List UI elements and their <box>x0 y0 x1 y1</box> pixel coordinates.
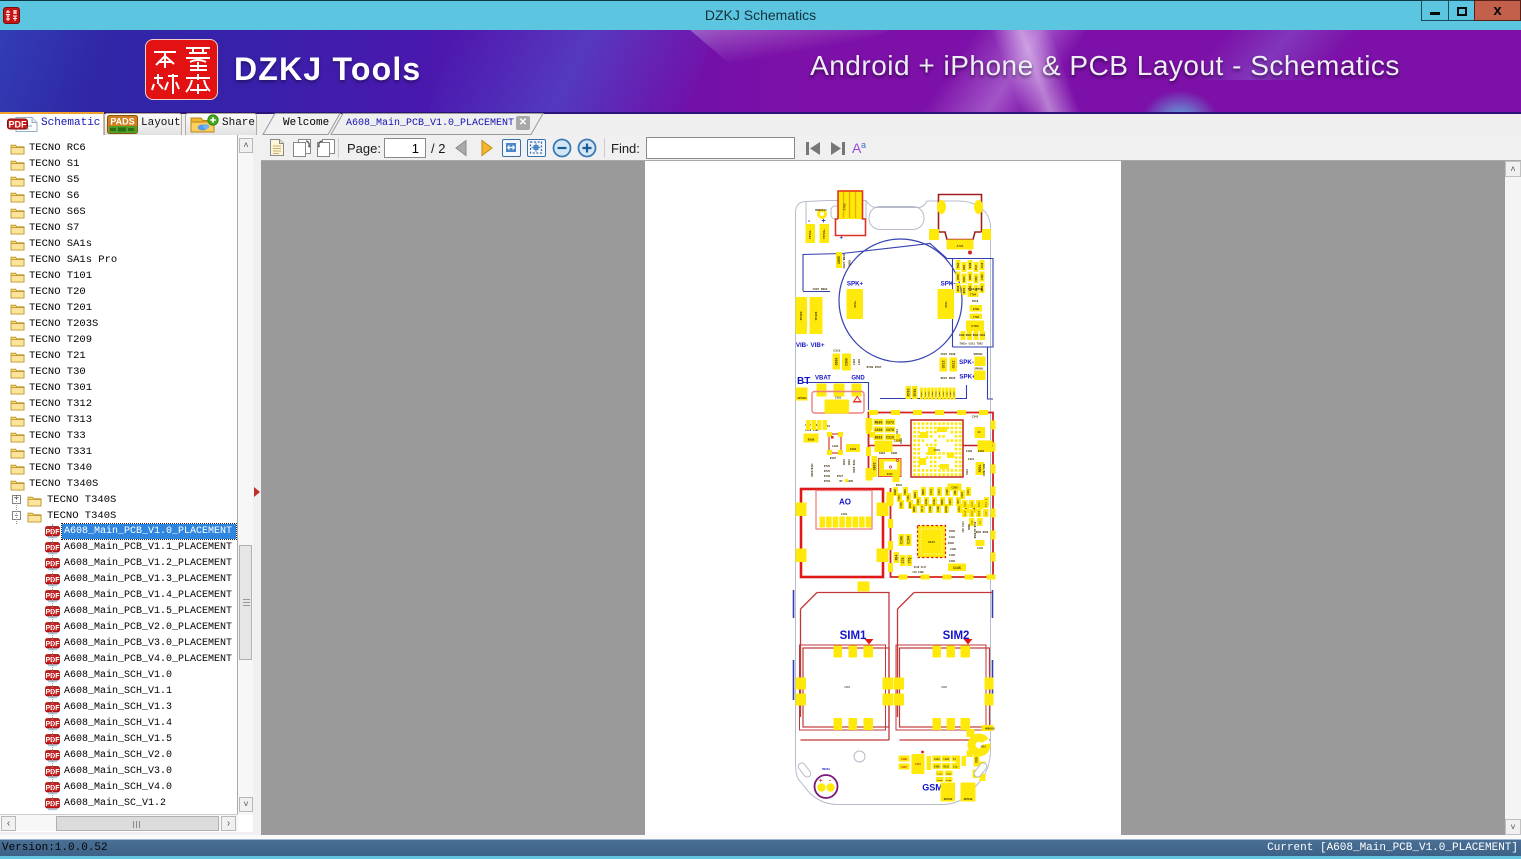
svg-text:MARK102: MARK102 <box>985 728 995 731</box>
svg-text:C313: C313 <box>971 501 974 507</box>
svg-text:+: + <box>822 218 826 225</box>
svg-text:C145: C145 <box>953 566 961 570</box>
svg-text:L104x: L104x <box>925 498 928 506</box>
svg-text:C105: C105 <box>900 536 904 544</box>
svg-text:C328: C328 <box>931 391 934 397</box>
svg-text:C7W C1WW: C7W C1WW <box>912 571 924 574</box>
svg-text:R498: R498 <box>969 262 972 268</box>
svg-text:C324: C324 <box>968 458 975 461</box>
svg-text:C111: C111 <box>958 506 961 512</box>
svg-text:C325: C325 <box>894 440 901 443</box>
svg-text:C318: C318 <box>961 492 964 498</box>
svg-text:-: - <box>808 218 811 225</box>
svg-text:TP301: TP301 <box>815 311 818 320</box>
svg-text:SPK+: SPK+ <box>847 281 864 288</box>
svg-text:C305: C305 <box>949 391 952 397</box>
svg-text:C122: C122 <box>900 502 903 508</box>
svg-text:J301: J301 <box>835 397 842 400</box>
svg-text:J402: J402 <box>941 686 948 689</box>
svg-text:C330: C330 <box>875 428 883 432</box>
svg-text:R605: R605 <box>941 499 944 505</box>
svg-text:R50B: R50B <box>978 510 981 516</box>
svg-text:R507 R506: R507 R506 <box>941 377 956 380</box>
svg-text:C50 C313: C50 C313 <box>962 521 965 533</box>
svg-text:C519: C519 <box>981 262 984 268</box>
svg-text:R107: R107 <box>830 457 837 460</box>
svg-text:C808: C808 <box>891 452 898 455</box>
svg-text:R708 R707: R708 R707 <box>867 366 882 369</box>
svg-text:C343: C343 <box>972 416 979 419</box>
svg-text:+: + <box>840 236 844 242</box>
svg-text:SPK-: SPK- <box>959 359 974 366</box>
svg-text:C102: C102 <box>949 554 956 557</box>
svg-text:C304: C304 <box>853 359 856 366</box>
svg-text:C331: C331 <box>971 510 974 516</box>
svg-text:ANT100: ANT100 <box>964 798 973 801</box>
svg-text:J701: J701 <box>956 245 963 248</box>
svg-text:TP302: TP302 <box>800 311 803 320</box>
svg-text:E16: E16 <box>971 520 974 525</box>
svg-text:SPK+: SPK+ <box>854 300 857 307</box>
svg-text:C489: C489 <box>934 766 940 769</box>
svg-text:R504 R500: R504 R500 <box>976 531 989 534</box>
svg-text:U301: U301 <box>934 449 941 452</box>
svg-text:C517: C517 <box>975 264 978 270</box>
svg-text:+: + <box>819 779 823 785</box>
svg-text:C308: C308 <box>966 450 973 453</box>
svg-text:MARK101: MARK101 <box>815 209 827 212</box>
svg-text:C314: C314 <box>896 429 899 435</box>
svg-text:C318: C318 <box>900 438 903 444</box>
svg-text:R725: R725 <box>824 470 831 473</box>
svg-text:T704+R705: T704+R705 <box>968 288 983 291</box>
svg-text:C317: C317 <box>957 499 960 505</box>
svg-text:L302: L302 <box>832 445 839 448</box>
svg-text:C516: C516 <box>972 300 979 303</box>
svg-text:C117: C117 <box>938 489 941 495</box>
svg-text:AO: AO <box>839 498 851 507</box>
svg-text:C372: C372 <box>886 421 894 425</box>
svg-text:SPK+: SPK+ <box>959 374 976 381</box>
svg-text:J702: J702 <box>844 203 847 210</box>
svg-text:R308: R308 <box>808 439 815 442</box>
svg-text:SPK-: SPK- <box>945 300 948 307</box>
svg-text:25.2: 25.2 <box>921 506 924 512</box>
svg-text:R604: R604 <box>914 492 917 498</box>
svg-text:C308: C308 <box>951 487 958 490</box>
svg-text:R708: R708 <box>927 391 930 397</box>
svg-text:C65: C65 <box>975 757 979 763</box>
svg-text:R586: R586 <box>875 421 883 425</box>
svg-text:GND: GND <box>851 376 865 382</box>
svg-text:C128 C117: C128 C117 <box>914 566 927 569</box>
svg-text:C302: C302 <box>850 448 857 451</box>
svg-text:R727: R727 <box>920 391 923 397</box>
svg-text:SPK-: SPK- <box>941 281 956 288</box>
svg-text:C807 R802: C807 R802 <box>813 288 828 291</box>
svg-text:R504: R504 <box>985 501 988 507</box>
svg-text:ANT403: ANT403 <box>797 397 807 400</box>
svg-text:E700: E700 <box>973 308 980 311</box>
svg-text:SPK502: SPK502 <box>973 353 983 356</box>
svg-text:C149: C149 <box>977 547 984 550</box>
svg-text:C312: C312 <box>964 510 967 516</box>
svg-text:J601: J601 <box>980 746 986 749</box>
svg-text:R558: R558 <box>957 285 960 291</box>
svg-text:R203: R203 <box>843 459 846 465</box>
svg-text:R108: R108 <box>949 530 956 533</box>
svg-text:M905m: M905m <box>822 768 830 771</box>
svg-text:L505: L505 <box>981 274 984 280</box>
svg-text:R102x: R102x <box>945 505 948 513</box>
svg-text:C70: C70 <box>901 558 905 564</box>
svg-text:C12: C12 <box>985 511 988 516</box>
svg-text:C507 C508: C507 C508 <box>941 353 956 356</box>
svg-text:C704: C704 <box>971 325 978 328</box>
svg-text:R702: R702 <box>963 287 966 293</box>
svg-text:T503+ C513 T502: T503+ C513 T502 <box>959 343 983 346</box>
svg-text:SPK501: SPK501 <box>974 368 984 371</box>
svg-text:C407: C407 <box>901 766 907 769</box>
svg-text:R106: R106 <box>894 489 897 495</box>
svg-text:C406: C406 <box>949 560 956 563</box>
svg-text:D305: D305 <box>834 358 838 366</box>
svg-text:C310: C310 <box>945 391 948 397</box>
svg-text:R703: R703 <box>906 389 910 397</box>
svg-text:U103: U103 <box>928 541 935 544</box>
svg-text:C133: C133 <box>934 758 940 761</box>
svg-text:C103x: C103x <box>929 505 932 513</box>
svg-text:C320/C303: C320/C303 <box>983 463 986 476</box>
svg-text:R727: R727 <box>837 475 844 478</box>
svg-text:C319: C319 <box>886 436 894 440</box>
svg-text:C310: C310 <box>978 450 985 453</box>
svg-text:C513: C513 <box>941 361 945 369</box>
svg-text:R730: R730 <box>824 475 831 478</box>
svg-text:R509/P5 R510: R509/P5 R510 <box>974 521 977 538</box>
svg-text:T504: T504 <box>957 262 960 268</box>
svg-text:R112: R112 <box>909 502 912 508</box>
svg-text:C408: C408 <box>901 758 907 761</box>
svg-text:C512: C512 <box>951 361 955 369</box>
svg-text:R803: R803 <box>849 260 852 267</box>
svg-text:R132: R132 <box>943 766 949 769</box>
svg-text:T704: T704 <box>970 294 977 297</box>
svg-text:a: a <box>861 140 866 150</box>
svg-text:C114: C114 <box>930 489 933 495</box>
svg-text:R704: R704 <box>913 389 917 397</box>
svg-text:R301: R301 <box>978 465 982 473</box>
svg-text:C352: C352 <box>975 276 978 282</box>
svg-text:C109: C109 <box>937 506 940 512</box>
svg-text:R711: R711 <box>924 391 927 397</box>
svg-text:L104: L104 <box>943 758 949 761</box>
svg-text:R559: R559 <box>957 274 960 280</box>
svg-text:R204: R204 <box>848 459 851 465</box>
svg-text:J404: J404 <box>841 513 848 516</box>
svg-text:R710: R710 <box>935 391 938 397</box>
svg-text:E401: E401 <box>915 763 921 766</box>
svg-text:C135x: C135x <box>933 498 936 506</box>
svg-text:C804: C804 <box>879 452 886 455</box>
svg-text:J403: J403 <box>844 686 851 689</box>
svg-text:R605/R404: R605/R404 <box>811 463 814 476</box>
svg-text:C123: C123 <box>917 499 920 505</box>
svg-text:R704: R704 <box>824 480 831 483</box>
svg-text:C313: C313 <box>949 499 952 505</box>
svg-text:C104: C104 <box>907 536 911 544</box>
svg-text:T702: T702 <box>973 316 980 319</box>
svg-text:C326: C326 <box>953 391 956 397</box>
svg-text:C131: C131 <box>967 489 970 495</box>
svg-text:C101: C101 <box>907 495 910 501</box>
svg-text:R701: R701 <box>963 276 966 282</box>
svg-text:SIM1: SIM1 <box>840 630 867 642</box>
svg-text:R605: R605 <box>913 506 916 512</box>
svg-text:VIB-: VIB- <box>796 342 808 349</box>
svg-text:GSM: GSM <box>922 783 943 793</box>
svg-text:C319: C319 <box>942 391 945 397</box>
svg-text:TP701+: TP701+ <box>823 229 826 239</box>
svg-text:BT: BT <box>797 376 810 387</box>
svg-text:C807/R802: C807/R802 <box>842 253 846 268</box>
svg-text:R603: R603 <box>922 489 925 495</box>
svg-text:ANT102: ANT102 <box>944 798 953 801</box>
svg-text:L301: L301 <box>858 359 861 366</box>
svg-text:C365: C365 <box>845 358 849 366</box>
svg-text:R453: R453 <box>969 274 972 280</box>
svg-text:C806 R602 R503 C809: C806 R602 R503 C809 <box>959 334 986 337</box>
svg-text:C312: C312 <box>938 391 941 397</box>
svg-text:VBAT: VBAT <box>815 376 831 382</box>
svg-text:C7Q: C7Q <box>907 558 911 564</box>
svg-text:R102: R102 <box>948 542 955 545</box>
svg-text:C100: C100 <box>950 548 957 551</box>
svg-text:R302: R302 <box>875 436 883 440</box>
svg-text:C140: C140 <box>946 779 952 782</box>
svg-text:C323: C323 <box>964 501 967 507</box>
svg-text:-: - <box>829 779 831 785</box>
svg-text:C321: C321 <box>966 469 969 475</box>
svg-text:TP704-: TP704- <box>809 229 812 239</box>
svg-text:C151: C151 <box>898 495 901 501</box>
svg-text:C803: C803 <box>872 463 876 471</box>
svg-text:C378: C378 <box>886 428 894 432</box>
svg-text:R539: R539 <box>978 501 981 507</box>
svg-text:R508: R508 <box>968 524 971 530</box>
svg-text:R735: R735 <box>824 465 831 468</box>
svg-text:L123: L123 <box>937 773 943 776</box>
svg-text:L504: L504 <box>963 264 966 270</box>
svg-text:C548: C548 <box>946 773 952 776</box>
svg-text:R54: R54 <box>894 555 898 561</box>
svg-text:R305 R304: R305 R304 <box>853 459 856 472</box>
svg-text:VIB+: VIB+ <box>811 342 825 349</box>
svg-text:C103: C103 <box>949 536 956 539</box>
svg-text:R7: R7 <box>839 480 843 483</box>
svg-text:C311: C311 <box>833 350 840 353</box>
svg-text:C805: C805 <box>837 256 841 264</box>
svg-text:K601: K601 <box>896 484 903 487</box>
